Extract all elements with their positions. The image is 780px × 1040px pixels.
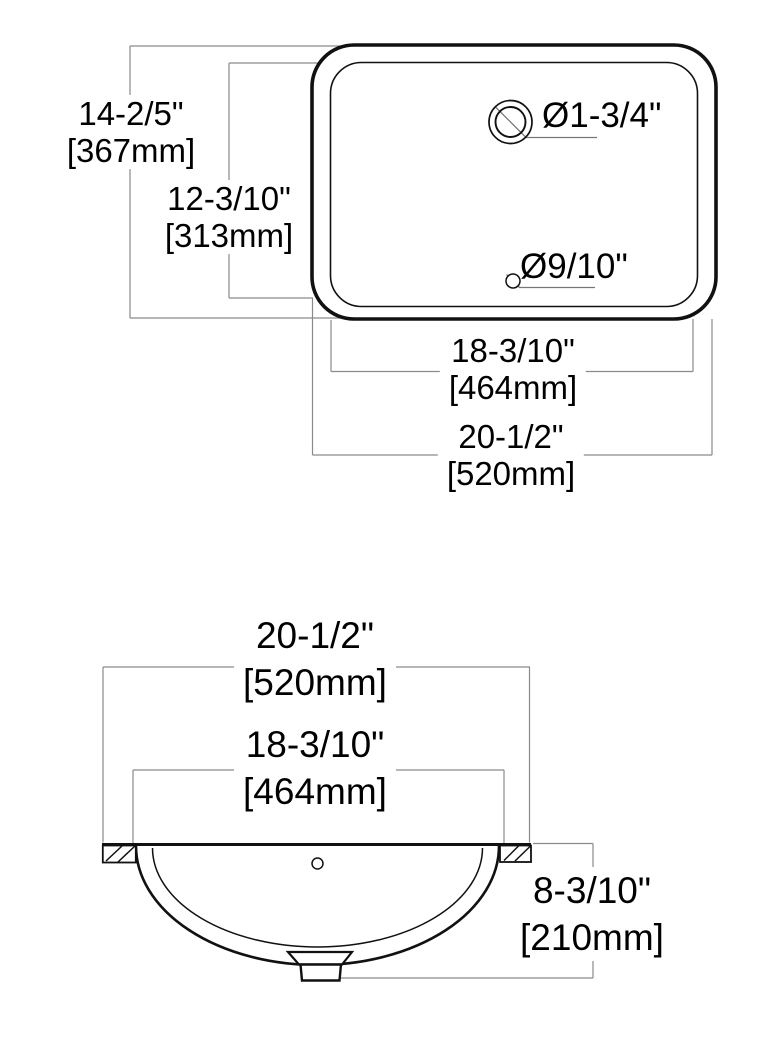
rim-cross-section-right	[500, 846, 531, 863]
dim-mm: [520mm]	[243, 659, 387, 706]
drain-flange	[288, 952, 352, 965]
dim-text-front-overall-width: 20-1/2" [520mm]	[234, 612, 396, 706]
dim-mm: [313mm]	[165, 217, 293, 254]
drain-outlet	[288, 952, 352, 981]
front-view-overflow-hole	[312, 858, 323, 869]
dim-inches: 12-3/10"	[165, 180, 293, 217]
dim-text-front-basin-width: 18-3/10" [464mm]	[234, 721, 396, 815]
dim-inches: 18-3/10"	[449, 332, 577, 369]
dim-inches: 20-1/2"	[447, 418, 575, 455]
overflow-hole-diameter-label: Ø9/10"	[520, 248, 628, 286]
dim-text-top-overall-height: 14-2/5" [367mm]	[58, 95, 204, 169]
drain-body	[301, 965, 342, 981]
dim-text-top-basin-width: 18-3/10" [464mm]	[440, 332, 586, 406]
dim-inches: 14-2/5"	[67, 95, 195, 132]
overflow-hole-circle	[506, 274, 520, 288]
dim-mm: [210mm]	[520, 914, 664, 961]
dim-inches: 20-1/2"	[243, 612, 387, 659]
dim-inches: 8-3/10"	[520, 867, 664, 914]
faucet-hole-diameter-label: Ø1-3/4"	[542, 97, 661, 135]
rim-cross-section-left	[103, 846, 136, 863]
dim-mm: [464mm]	[243, 768, 387, 815]
dim-text-top-overall-width: 20-1/2" [520mm]	[438, 418, 584, 492]
dim-mm: [464mm]	[449, 369, 577, 406]
dim-mm: [520mm]	[447, 455, 575, 492]
dim-mm: [367mm]	[67, 132, 195, 169]
sink-dimension-drawing: 14-2/5" [367mm] 12-3/10" [313mm] Ø1-3/4"…	[0, 0, 780, 1040]
dim-inches: 18-3/10"	[243, 721, 387, 768]
dim-text-top-basin-height: 12-3/10" [313mm]	[156, 180, 302, 254]
dim-text-front-depth: 8-3/10" [210mm]	[511, 867, 673, 961]
